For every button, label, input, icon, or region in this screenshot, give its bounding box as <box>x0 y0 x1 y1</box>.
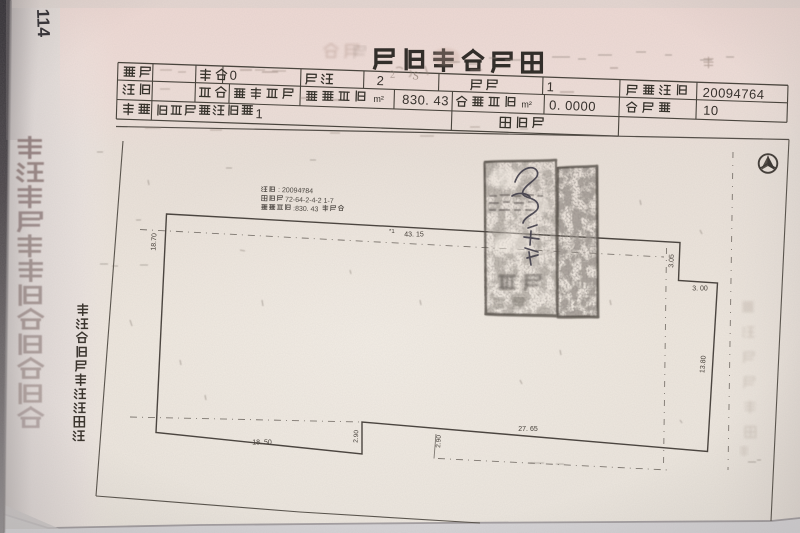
svg-text:114: 114 <box>33 8 54 37</box>
svg-text:*1: *1 <box>389 229 395 235</box>
svg-text:3.05: 3.05 <box>668 254 675 268</box>
svg-text:2: 2 <box>376 73 384 88</box>
svg-text:10: 10 <box>703 103 719 119</box>
svg-text:2.90: 2.90 <box>435 435 443 448</box>
svg-text:1: 1 <box>255 106 263 121</box>
svg-text:0. 0000: 0. 0000 <box>549 97 596 114</box>
svg-text:20094764: 20094764 <box>702 85 764 102</box>
svg-text:m²: m² <box>521 99 532 109</box>
svg-text:: 20094784: : 20094784 <box>278 187 313 195</box>
svg-text:2.90: 2.90 <box>353 430 361 443</box>
svg-text:0: 0 <box>229 68 237 83</box>
svg-text:18. 50: 18. 50 <box>252 440 272 447</box>
svg-text:18.70: 18.70 <box>151 233 159 251</box>
svg-text:2: 2 <box>389 69 396 81</box>
svg-text:m²: m² <box>373 94 384 104</box>
svg-text:43. 15: 43. 15 <box>404 232 424 239</box>
svg-text:3. 00: 3. 00 <box>692 286 708 293</box>
svg-text::830. 43: :830. 43 <box>293 206 319 214</box>
svg-text:27. 65: 27. 65 <box>518 426 538 433</box>
svg-text:830. 43: 830. 43 <box>402 92 449 109</box>
svg-text:1: 1 <box>546 79 554 94</box>
